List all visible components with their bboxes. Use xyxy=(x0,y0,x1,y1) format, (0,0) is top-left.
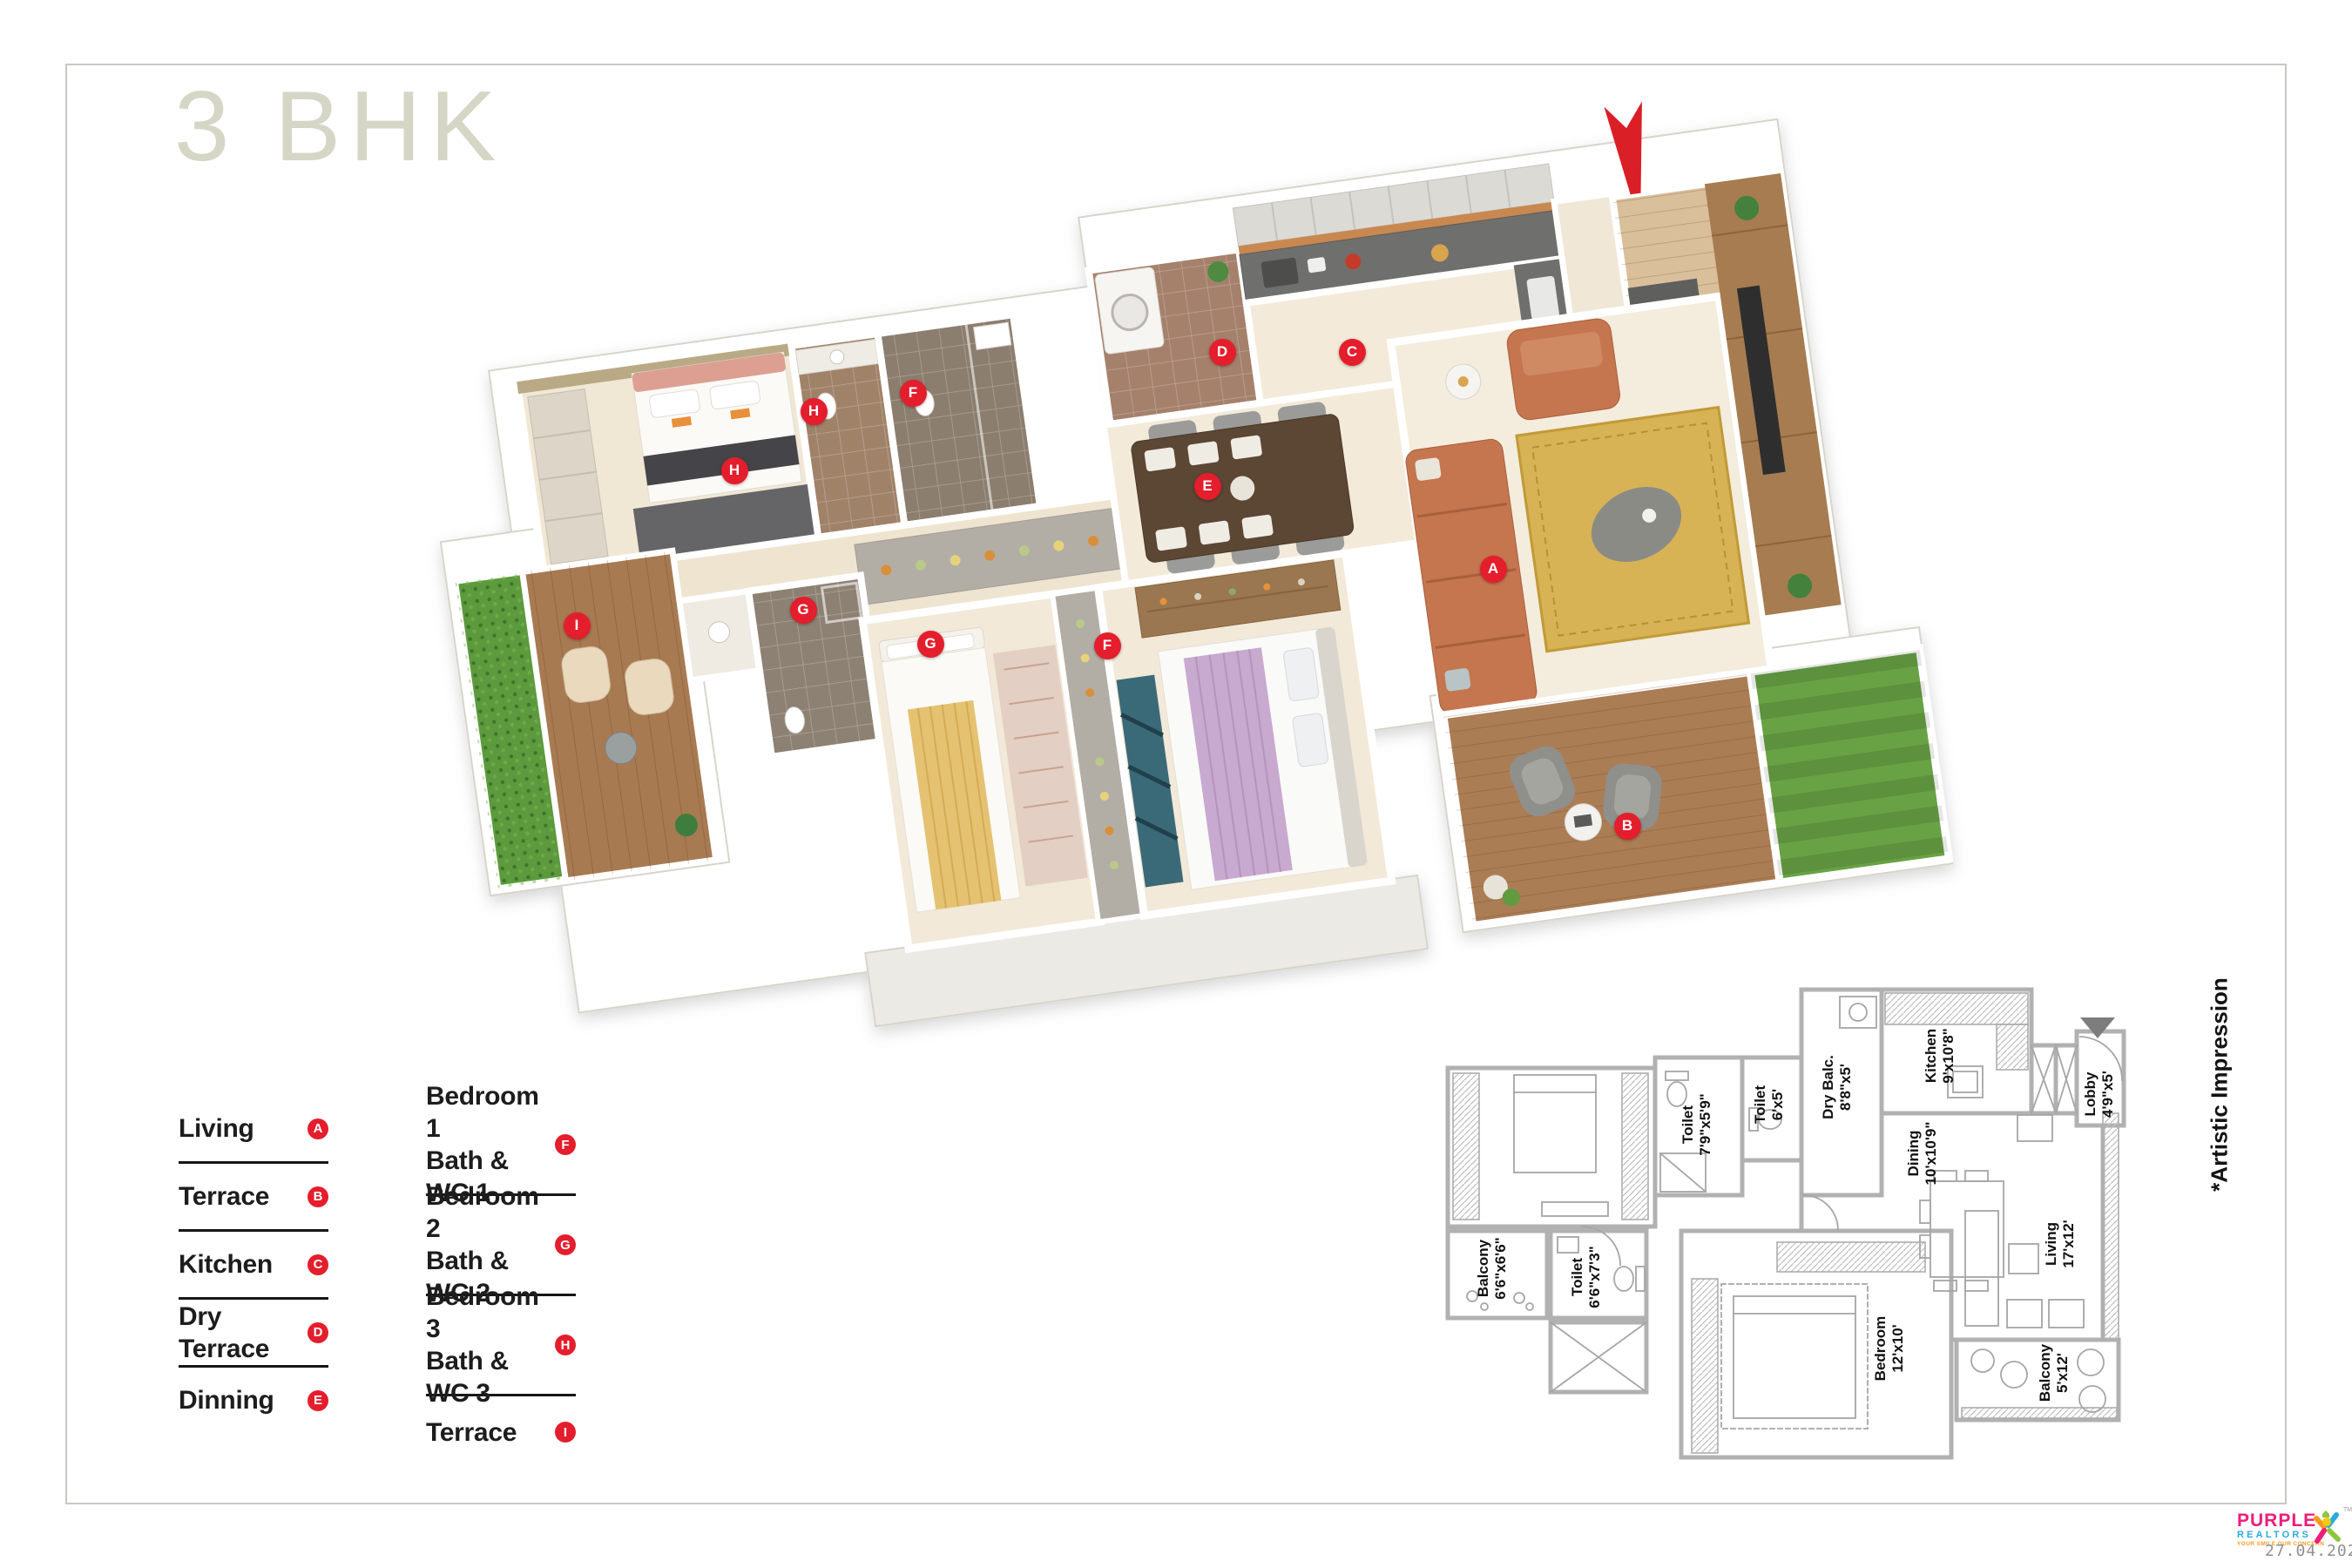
plan-marker-h: H xyxy=(721,457,748,484)
artistic-impression-note: *Artistic Impression xyxy=(2207,977,2234,1192)
legend-item-d: Dry TerraceD xyxy=(179,1300,328,1368)
keyplan-label-dry-balc-: Dry Balc.8'8"x5' xyxy=(1820,1055,1854,1119)
plan-marker-f: F xyxy=(1094,632,1121,659)
legend-badge-b: B xyxy=(308,1186,328,1207)
keyplan-label-bedroom: Bedroom12'x10' xyxy=(1872,1316,1906,1382)
keyplan-label-balcony: Balcony6'6"x6'6" xyxy=(1475,1237,1509,1299)
trademark-symbol: TM xyxy=(2343,1507,2352,1513)
plan-marker-d: D xyxy=(1209,339,1236,366)
plan-marker-g: G xyxy=(917,631,944,658)
plan-marker-b: B xyxy=(1614,813,1641,840)
keyplan-label-toilet: Toilet6'x5' xyxy=(1752,1085,1786,1124)
plan-marker-f: F xyxy=(900,380,927,407)
plan-2d-keyplan: Toilet7'9"x5'9"Toilet6'x5'Dry Balc.8'8"x… xyxy=(1448,990,2124,1457)
legend-item-b: TerraceB xyxy=(179,1164,328,1232)
legend-label: Dry Terrace xyxy=(179,1301,308,1365)
legend-item-e: DinningE xyxy=(179,1368,328,1433)
legend-badge-d: D xyxy=(308,1322,328,1343)
legend-badge-h: H xyxy=(555,1335,576,1355)
legend-column-2: Bedroom 1Bath & WC 1FBedroom 2Bath & WC … xyxy=(426,1096,576,1468)
legend-item-a: LivingA xyxy=(179,1096,328,1164)
plan-marker-i: I xyxy=(564,612,591,639)
keyplan-label-living: Living17'x12' xyxy=(2043,1220,2077,1267)
legend-badge-a: A xyxy=(308,1119,328,1139)
legend-label: Terrace xyxy=(426,1416,517,1449)
legend-label: Kitchen xyxy=(179,1248,273,1281)
plan-marker-e: E xyxy=(1194,473,1221,500)
keyplan-label-kitchen: Kitchen9'x10'8" xyxy=(1923,1028,1957,1083)
legend-item-i: TerraceI xyxy=(426,1396,576,1468)
legend-label: Dinning xyxy=(179,1384,274,1416)
legend-label: Living xyxy=(179,1112,254,1145)
room-bedroom-1 xyxy=(1098,553,1392,916)
legend-badge-f: F xyxy=(555,1134,576,1155)
keyplan-label-lobby: Lobby4'9"x5' xyxy=(2082,1071,2116,1118)
legend: LivingATerraceBKitchenCDry TerraceDDinni… xyxy=(179,1096,576,1468)
date-stamp: 27.04.2023 xyxy=(2265,1542,2352,1560)
room-bath-wc-1 xyxy=(878,314,1040,525)
brochure-page: 3 BHK xyxy=(0,0,2352,1568)
keyplan-label-dining: Dining10'x10'9" xyxy=(1905,1122,1939,1186)
plan-marker-c: C xyxy=(1339,339,1366,366)
legend-badge-e: E xyxy=(308,1390,328,1411)
legend-item-h: Bedroom 3Bath & WC 3H xyxy=(426,1296,576,1396)
legend-column-1: LivingATerraceBKitchenCDry TerraceDDinni… xyxy=(179,1096,328,1468)
legend-label: Bedroom 3Bath & WC 3 xyxy=(426,1281,555,1409)
plan-3d-render xyxy=(403,73,1954,1077)
room-dry-terrace xyxy=(1089,249,1260,423)
plan-marker-g: G xyxy=(790,597,817,624)
legend-badge-i: I xyxy=(555,1422,576,1443)
brand-star-figure-icon xyxy=(2310,1509,2343,1545)
legend-badge-g: G xyxy=(555,1234,576,1255)
legend-badge-c: C xyxy=(308,1254,328,1275)
legend-label: Terrace xyxy=(179,1180,269,1213)
plan-marker-a: A xyxy=(1480,556,1507,583)
legend-item-c: KitchenC xyxy=(179,1232,328,1300)
plan-marker-h: H xyxy=(801,398,828,425)
